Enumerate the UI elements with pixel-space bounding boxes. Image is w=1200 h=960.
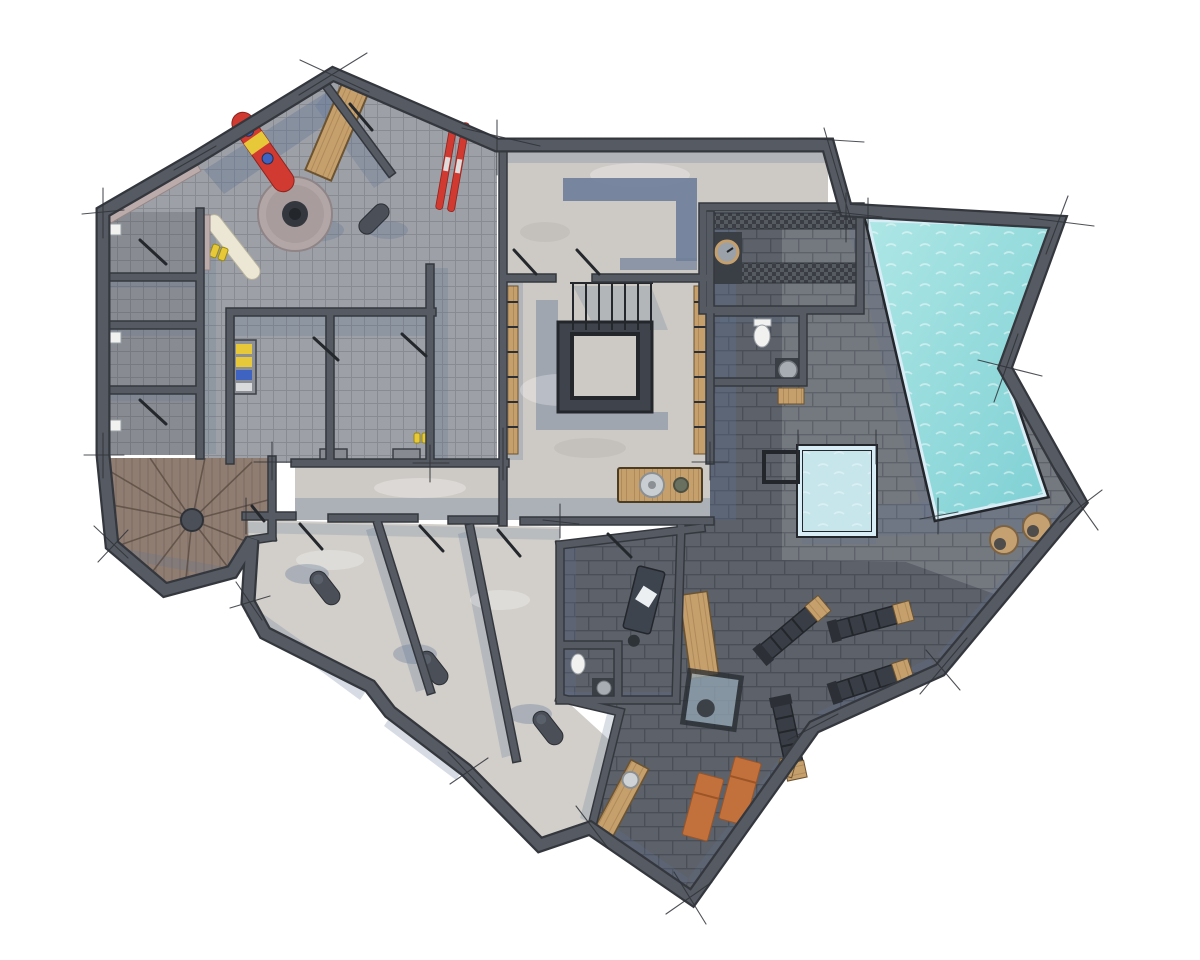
stair-newel-post: [181, 509, 203, 531]
massage-wc-basin: [597, 681, 611, 695]
wicker-stool-1: [990, 526, 1018, 554]
floor-plan-page: [0, 0, 1200, 960]
plant: [674, 478, 688, 492]
toilet: [754, 325, 770, 347]
wc-basin: [779, 361, 797, 379]
wood-stool: [778, 388, 804, 404]
glass-side-table: [683, 671, 742, 730]
boot-shelf: [232, 340, 256, 394]
boot-dryer: [258, 177, 332, 251]
sideboard: [618, 468, 702, 502]
massage-wc-toilet: [571, 654, 585, 674]
sauna-grate-strip: [712, 213, 862, 229]
floor-plan-canvas: [0, 0, 1200, 960]
